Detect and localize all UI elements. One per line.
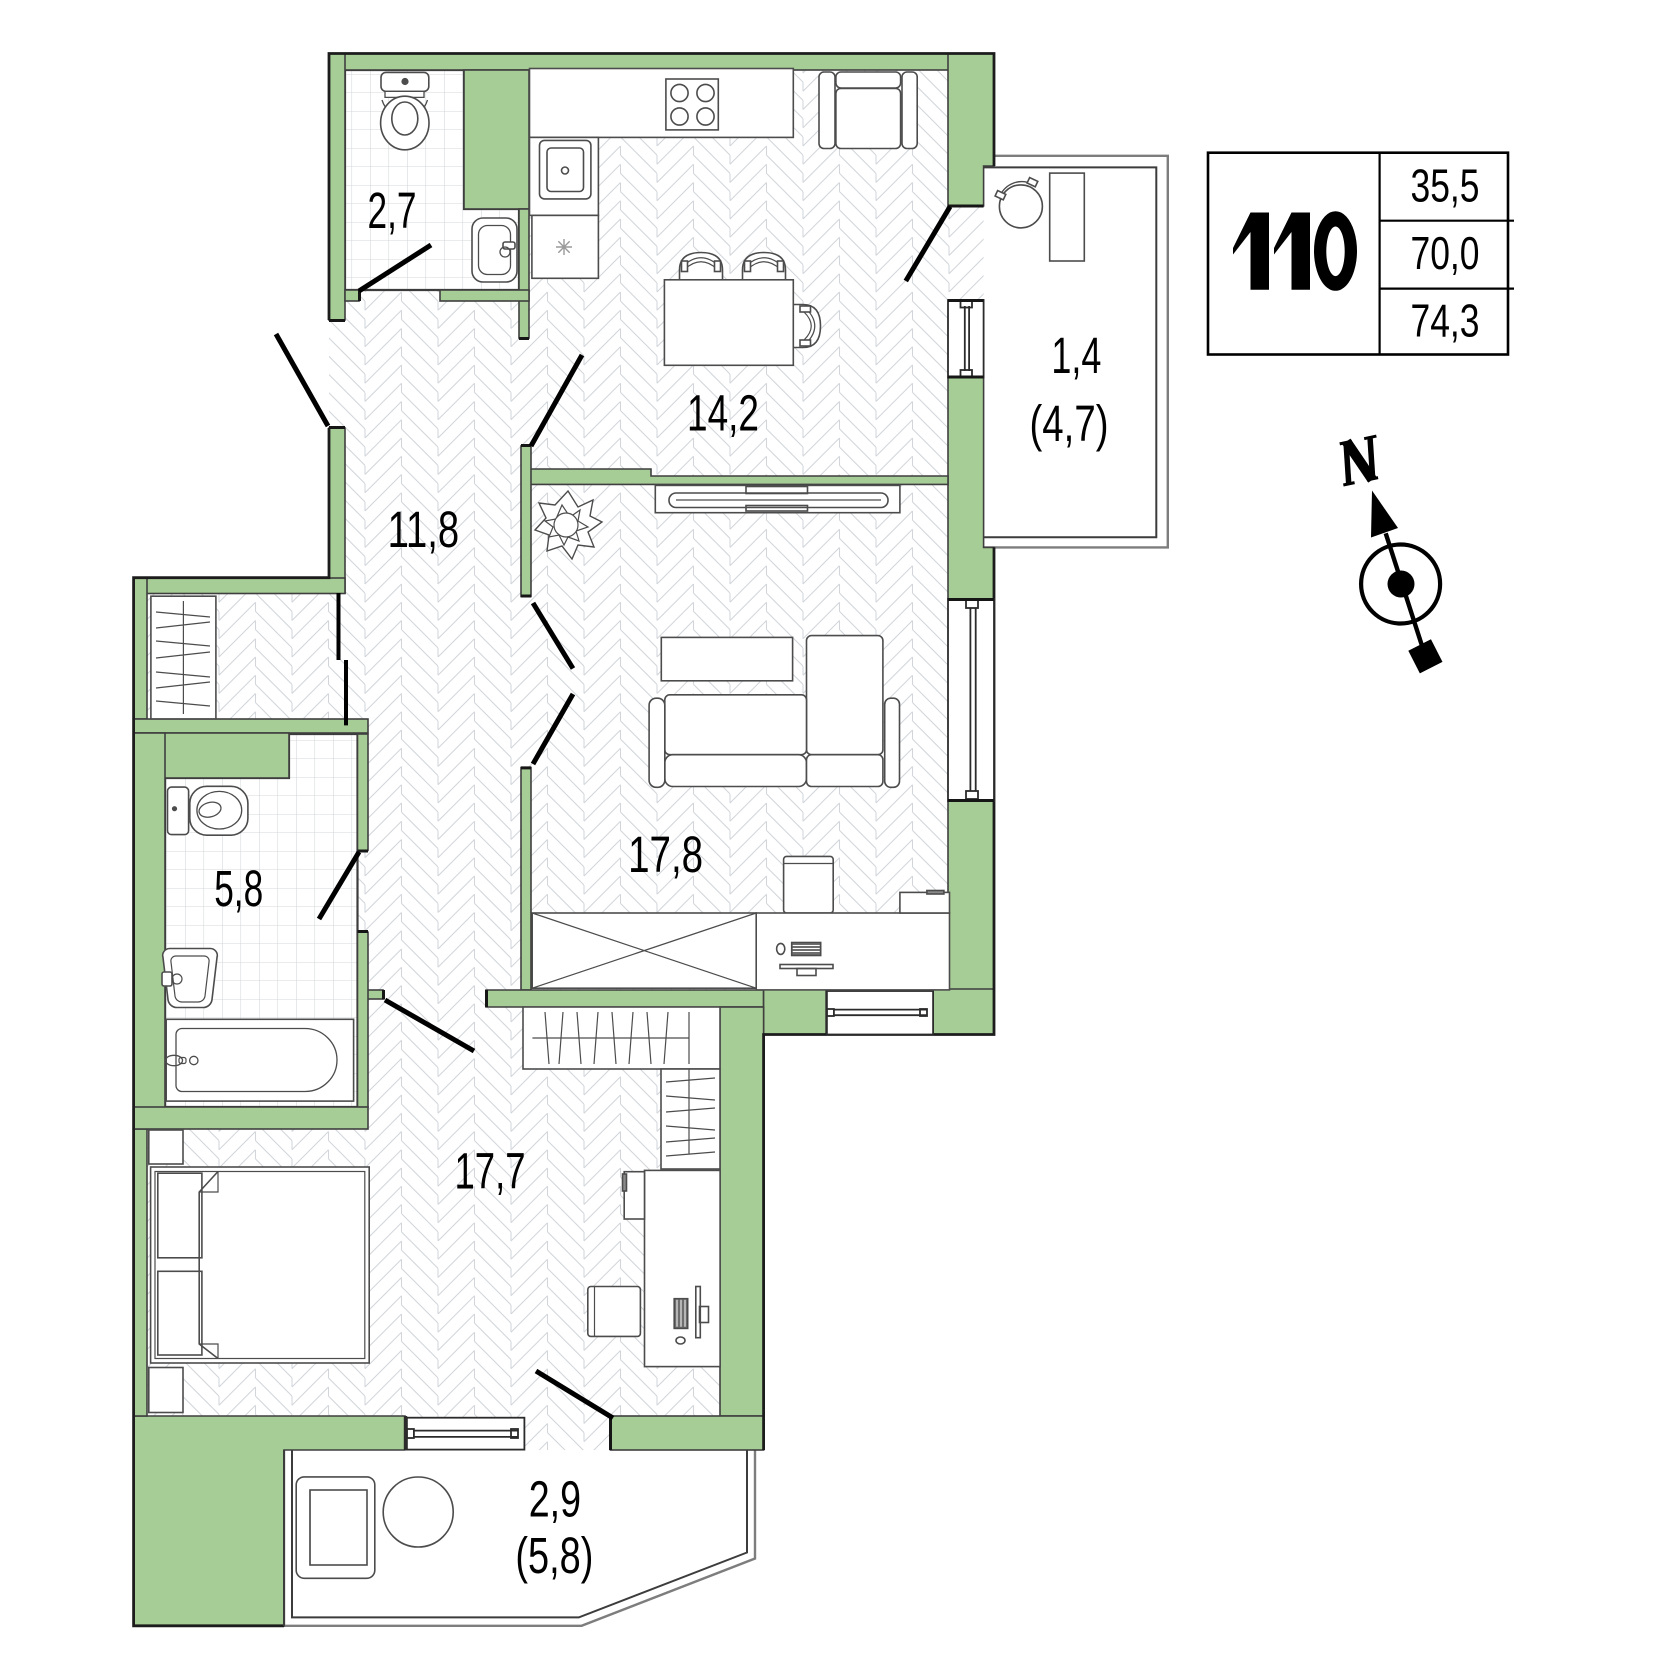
svg-text:35,5: 35,5 [1411,160,1480,212]
svg-text:70,0: 70,0 [1411,227,1480,279]
svg-text:17,7: 17,7 [455,1143,526,1200]
svg-text:1,4: 1,4 [1051,327,1101,384]
svg-text:(4,7): (4,7) [1030,395,1109,452]
svg-text:14,2: 14,2 [687,385,759,442]
svg-text:2,7: 2,7 [368,182,417,239]
svg-text:(5,8): (5,8) [515,1527,593,1584]
svg-text:5,8: 5,8 [214,860,263,917]
svg-text:2,9: 2,9 [529,1471,581,1528]
svg-text:17,8: 17,8 [628,826,703,883]
svg-text:74,3: 74,3 [1411,295,1480,347]
svg-text:11,8: 11,8 [388,501,460,558]
